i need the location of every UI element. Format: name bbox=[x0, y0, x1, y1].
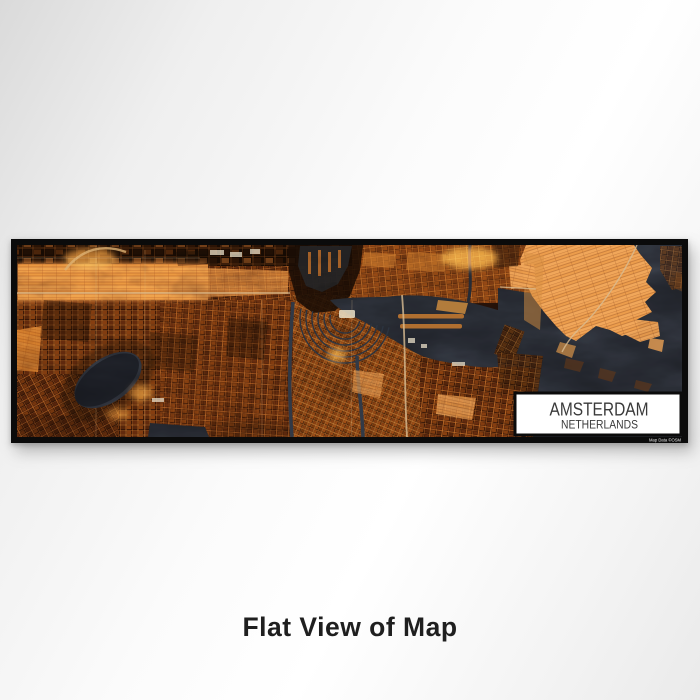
svg-text:NETHERLANDS: NETHERLANDS bbox=[561, 420, 638, 432]
svg-text:AMSTERDAM: AMSTERDAM bbox=[550, 399, 649, 420]
svg-text:Map Data ©OSM: Map Data ©OSM bbox=[649, 438, 681, 443]
